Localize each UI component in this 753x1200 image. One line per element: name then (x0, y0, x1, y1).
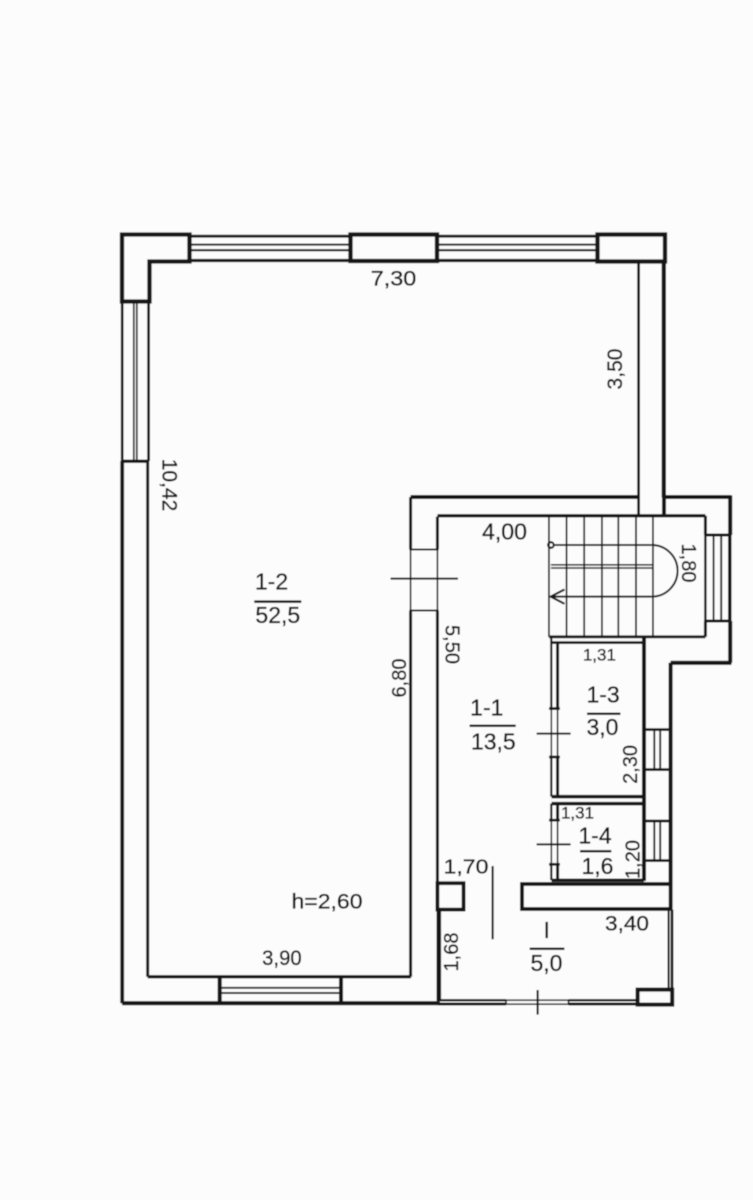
svg-text:1,68: 1,68 (441, 933, 463, 972)
svg-text:1-3: 1-3 (586, 682, 619, 708)
svg-text:3,0: 3,0 (587, 714, 619, 740)
svg-text:2,30: 2,30 (620, 745, 642, 784)
svg-text:1-4: 1-4 (578, 822, 611, 848)
svg-text:5,50: 5,50 (441, 625, 463, 664)
svg-text:h=2,60: h=2,60 (292, 891, 363, 914)
svg-text:1,20: 1,20 (623, 840, 645, 879)
svg-text:3,50: 3,50 (604, 349, 627, 390)
svg-text:3,90: 3,90 (262, 947, 302, 970)
svg-text:1-2: 1-2 (255, 568, 288, 594)
svg-text:1,70: 1,70 (444, 857, 489, 879)
svg-text:1,80: 1,80 (677, 544, 699, 583)
svg-text:13,5: 13,5 (471, 728, 516, 754)
svg-text:4,00: 4,00 (482, 519, 527, 545)
svg-text:52,5: 52,5 (255, 602, 300, 628)
svg-text:6,80: 6,80 (389, 659, 411, 698)
svg-text:1,31: 1,31 (561, 804, 594, 823)
svg-text:I: I (544, 917, 550, 943)
svg-text:5,0: 5,0 (531, 950, 563, 976)
svg-text:3,40: 3,40 (605, 913, 649, 936)
svg-text:7,30: 7,30 (371, 268, 417, 291)
svg-text:10,42: 10,42 (157, 459, 180, 512)
svg-text:1-1: 1-1 (470, 695, 503, 721)
svg-text:1,31: 1,31 (583, 645, 616, 664)
svg-text:1,6: 1,6 (582, 853, 614, 879)
